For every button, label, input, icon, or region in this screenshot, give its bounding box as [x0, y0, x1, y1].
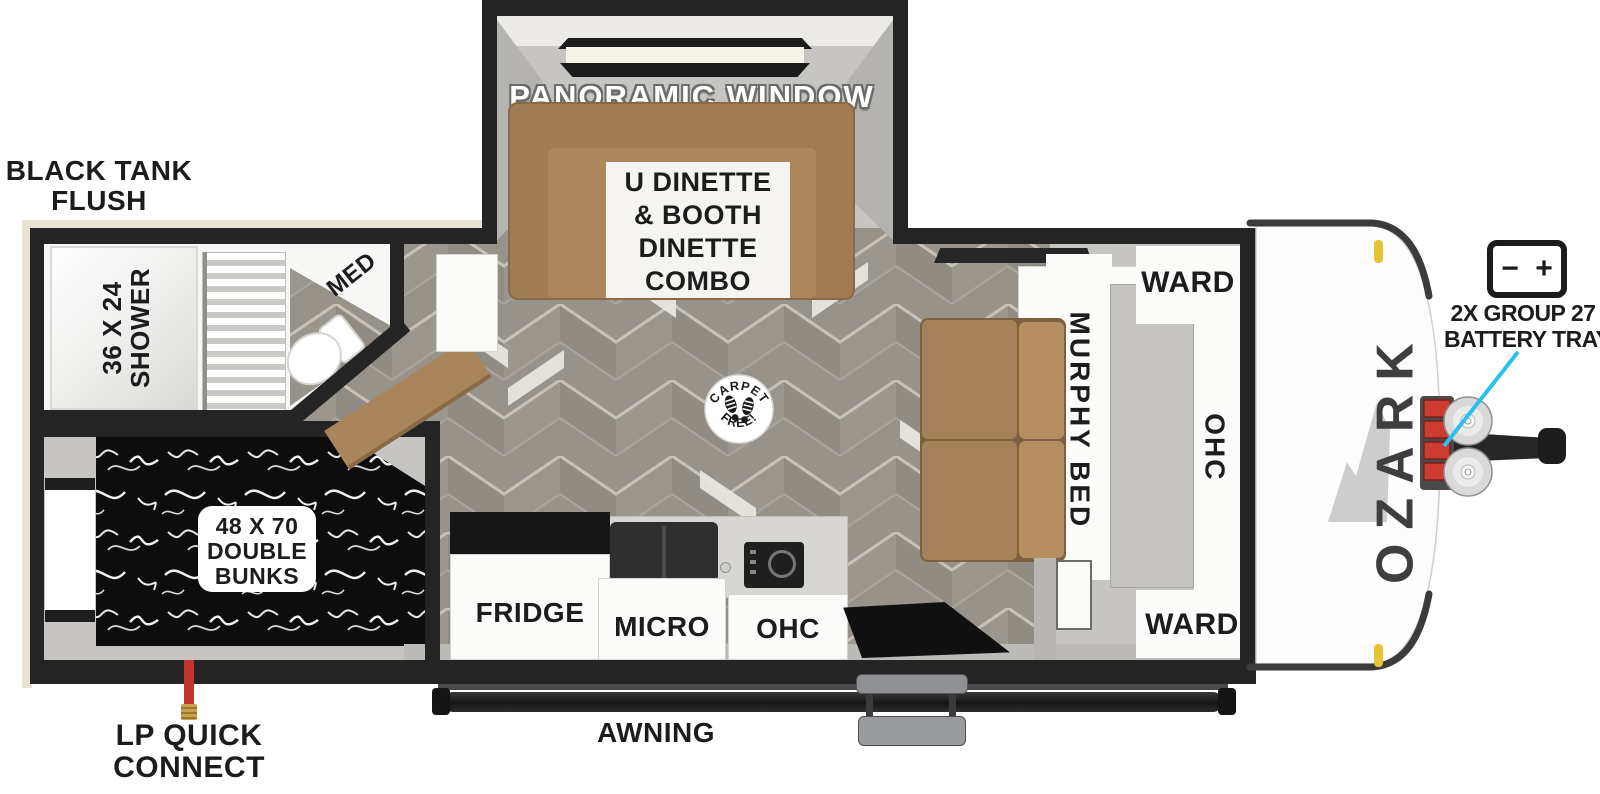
wardrobe-rod: [203, 252, 207, 412]
slideout-top-wall: [482, 0, 908, 16]
bathroom-right-stub-wall: [390, 240, 404, 334]
bunks-label-line2: DOUBLE: [198, 539, 316, 564]
lp-label-line2: CONNECT: [96, 752, 282, 784]
cooktop-burner: [768, 550, 796, 578]
tongue-assembly: [1400, 340, 1600, 540]
fridge-top: [450, 512, 610, 554]
battery-tray-note: 2X GROUP 27 BATTERY TRAY: [1444, 300, 1600, 352]
hitch-coupler: [1538, 428, 1566, 464]
lp-valve-fitting: [181, 704, 197, 720]
floorplan-canvas: PANORAMIC WINDOW U DINETTE & BOOTH DINET…: [0, 0, 1600, 794]
bed-side-cabinet: [1110, 284, 1194, 588]
rear-wall: [30, 228, 44, 684]
clearance-marker-top: [1374, 240, 1383, 263]
propane-tank-bottom: [1444, 448, 1492, 496]
lp-label-line1: LP QUICK: [96, 720, 282, 752]
entry-step-bracket: [856, 674, 968, 694]
panoramic-window-frame-bottom: [560, 63, 810, 77]
dinette-label-line3: DINETTE: [606, 232, 790, 265]
battery-minus-sign: −: [1501, 254, 1519, 284]
bedroom-ohc-label: OHC: [1199, 397, 1230, 497]
clearance-marker-bottom: [1374, 644, 1383, 667]
bed-cushion-seat-top: [1019, 322, 1064, 439]
shower-label-line1: 36 X 24: [98, 248, 126, 408]
panoramic-window-pane: [566, 47, 804, 65]
bunk-window-frame-top: [45, 478, 95, 490]
black-tank-line1: BLACK TANK: [4, 156, 194, 186]
bottom-wall: [30, 660, 1256, 684]
bed-cushion-back-bottom: [922, 441, 1017, 560]
sink-basin-divider: [662, 526, 666, 578]
wardrobe-hanging: [202, 252, 286, 412]
battery-icon: − +: [1487, 240, 1567, 298]
slideout-left-wall: [482, 0, 497, 244]
black-tank-line2: FLUSH: [4, 186, 194, 216]
bed-cushion-back-top: [922, 320, 1017, 439]
top-wall-left: [30, 228, 482, 244]
black-tank-flush-label: BLACK TANK FLUSH: [4, 156, 194, 216]
battery-note-line1: 2X GROUP 27: [1444, 300, 1600, 326]
hall-cabinet: [436, 254, 498, 352]
lp-valve-stem: [184, 660, 194, 706]
murphy-bed: [920, 318, 1066, 562]
dinette-label-line1: U DINETTE: [606, 166, 790, 199]
fridge-label: FRIDGE: [450, 598, 610, 629]
micro-label: MICRO: [598, 612, 726, 643]
shower-label: 36 X 24 SHOWER: [98, 248, 154, 408]
dinette-label-line2: & BOOTH: [606, 199, 790, 232]
bunks-label: 48 X 70 DOUBLE BUNKS: [198, 514, 316, 589]
awning-end-cap-left: [432, 688, 450, 715]
cooktop-knobs: [750, 550, 756, 580]
shower-label-line2: SHOWER: [126, 248, 154, 408]
entry-step-pad: [858, 716, 966, 746]
awning-tube: [444, 692, 1222, 712]
bunks-label-line3: BUNKS: [198, 564, 316, 589]
nightstand: [1056, 560, 1092, 630]
dinette-label: U DINETTE & BOOTH DINETTE COMBO: [606, 166, 790, 298]
lp-quick-connect-label: LP QUICK CONNECT: [96, 720, 282, 784]
faucet: [720, 562, 731, 573]
bed-cushion-seat-bottom: [1019, 441, 1064, 558]
awning-rail: [438, 684, 1228, 690]
bunkroom-right-wall: [425, 437, 440, 663]
battery-plus-sign: +: [1535, 254, 1553, 284]
slideout-right-wall: [893, 0, 908, 244]
bunk-window: [45, 486, 95, 614]
carpet-free-stamp: CARPET FREE!: [700, 370, 778, 448]
battery-note-line2: BATTERY TRAY: [1444, 326, 1600, 352]
kitchen-ohc-label: OHC: [728, 614, 848, 645]
murphy-bed-label: MURPHY BED: [1064, 290, 1095, 550]
bunk-window-frame-bottom: [45, 610, 95, 622]
dinette-label-line4: COMBO: [606, 265, 790, 298]
awning-label: AWNING: [576, 718, 736, 749]
bunks-label-line1: 48 X 70: [198, 514, 316, 539]
top-wall-right: [908, 228, 1256, 244]
bedroom-wall-stub: [1034, 558, 1056, 660]
